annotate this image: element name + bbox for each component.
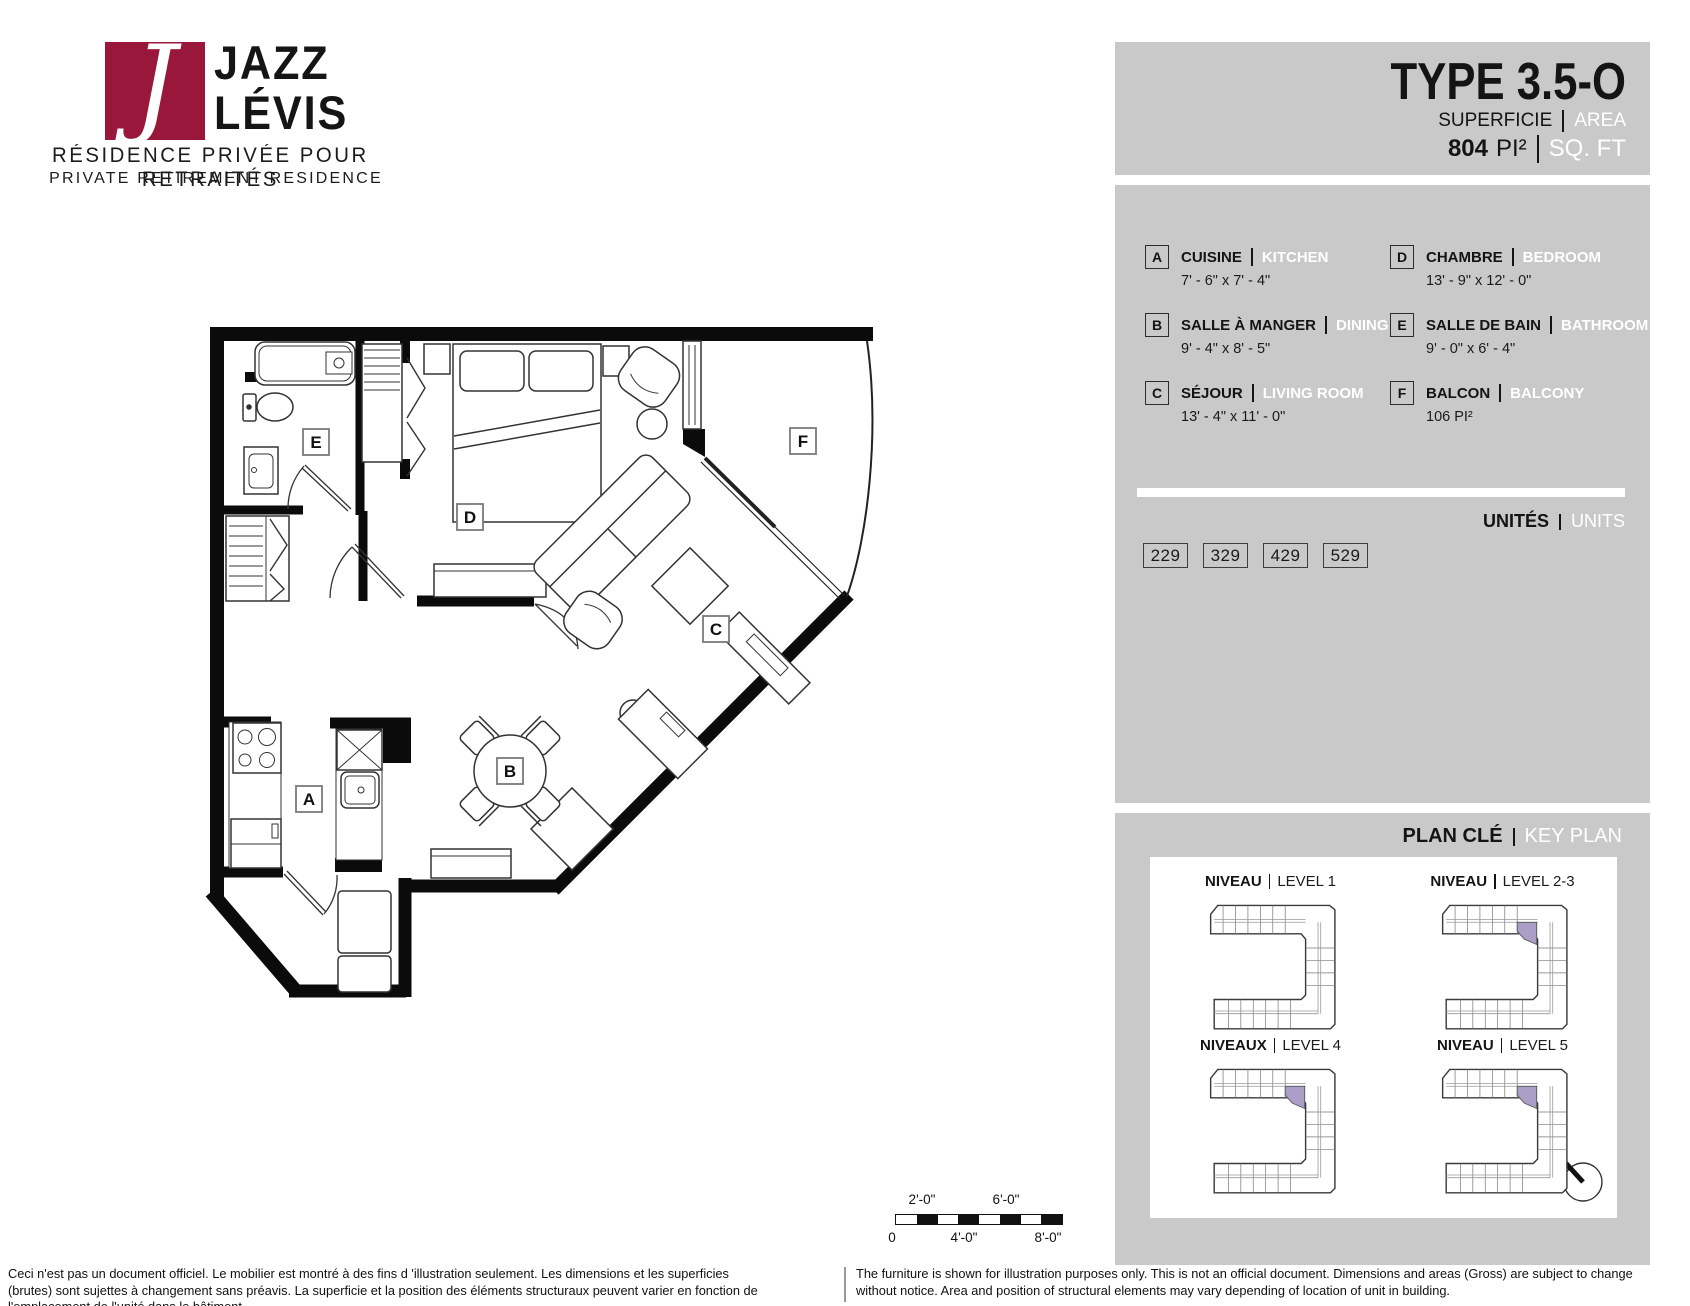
disclaimer-en: The furniture is shown for illustration … <box>856 1266 1636 1299</box>
legend-item: C SÉJOUR LIVING ROOM 13' - 4" x 11' - 0" <box>1145 381 1389 425</box>
scale-segment <box>938 1215 959 1224</box>
tv-console <box>718 612 810 704</box>
room-name-en: BEDROOM <box>1523 249 1601 266</box>
legend-item: D CHAMBRE BEDROOM 13' - 9" x 12' - 0" <box>1390 245 1648 289</box>
level-label-fr: NIVEAUX <box>1200 1037 1267 1054</box>
level-label-en: LEVEL 2-3 <box>1503 873 1575 890</box>
scale-segment <box>958 1215 979 1224</box>
room-name-fr: SÉJOUR <box>1181 385 1243 402</box>
fridge <box>231 819 281 868</box>
svg-text:D: D <box>464 508 476 527</box>
svg-text:C: C <box>710 620 722 639</box>
svg-text:F: F <box>798 432 808 451</box>
unit-type-header-panel: TYPE 3.5-O SUPERFICIE AREA 804 PI² SQ. F… <box>1115 42 1650 175</box>
room-label-D: D <box>457 504 483 530</box>
legend-item: A CUISINE KITCHEN 7' - 6" x 7' - 4" <box>1145 245 1389 289</box>
separator-bar <box>1537 135 1539 163</box>
closet <box>226 516 289 601</box>
room-name-en: KITCHEN <box>1262 249 1329 266</box>
dishwasher <box>337 730 382 770</box>
storage-unit <box>338 956 391 992</box>
key-plan-level: NIVEAU LEVEL 1 <box>1158 871 1383 1041</box>
key-plan-title-fr: PLAN CLÉ <box>1403 825 1503 848</box>
scale-segment <box>1041 1215 1062 1224</box>
room-name-en: BALCONY <box>1510 385 1584 402</box>
unit-number: 429 <box>1263 543 1308 568</box>
room-letter-badge: C <box>1145 381 1169 405</box>
unit-number: 229 <box>1143 543 1188 568</box>
room-name-en: LIVING ROOM <box>1263 385 1364 402</box>
room-name-fr: SALLE À MANGER <box>1181 317 1316 334</box>
scale-label: 0 <box>888 1230 896 1245</box>
svg-text:A: A <box>303 790 315 809</box>
balcony-sliding-door <box>701 458 845 600</box>
nightstand <box>424 344 450 374</box>
key-plan-box: N NIVEAU LEVEL 1 NIVEAU LEVEL 2-3 NIVEAU… <box>1150 857 1617 1218</box>
bedroom-closet <box>362 344 425 476</box>
key-plan-title-en: KEY PLAN <box>1525 825 1622 848</box>
logo-name-line1: JAZZ <box>214 38 348 88</box>
room-name-fr: CHAMBRE <box>1426 249 1503 266</box>
superficie-area-line: SUPERFICIE AREA <box>1115 110 1626 132</box>
units-title-fr: UNITÉS <box>1483 511 1549 532</box>
separator-bar <box>1499 384 1501 402</box>
scale-label: 2'-0" <box>909 1192 936 1207</box>
scale-segment <box>917 1215 938 1224</box>
unit-number: 329 <box>1203 543 1248 568</box>
bench <box>431 849 511 878</box>
separator-bar <box>1550 316 1552 334</box>
unit-number: 529 <box>1323 543 1368 568</box>
units-row: 229329429529 <box>1143 543 1368 568</box>
room-label-C: C <box>703 616 729 642</box>
logo-square: J <box>105 42 205 140</box>
room-label-F: F <box>790 428 816 454</box>
legend-units-panel: A CUISINE KITCHEN 7' - 6" x 7' - 4" B SA… <box>1115 185 1650 803</box>
logo-name-line2: LÉVIS <box>214 88 348 138</box>
scale-label: 4'-0" <box>951 1230 978 1245</box>
logo-tagline-en: PRIVATE RETIREMENT RESIDENCE <box>28 170 404 188</box>
room-label-E: E <box>303 429 329 455</box>
legend-item: E SALLE DE BAIN BATHROOM 9' - 0" x 6' - … <box>1390 313 1648 357</box>
legend-column-left: A CUISINE KITCHEN 7' - 6" x 7' - 4" B SA… <box>1145 245 1389 449</box>
key-plan-level: NIVEAU LEVEL 5 <box>1390 1035 1615 1205</box>
key-plan-panel: PLAN CLÉ KEY PLAN N NIVEAU LEVEL 1 NIVEA… <box>1115 813 1650 1265</box>
level-label-fr: NIVEAU <box>1437 1037 1494 1054</box>
key-plan-title: PLAN CLÉ KEY PLAN <box>1403 825 1622 848</box>
level-label-fr: NIVEAU <box>1430 873 1487 890</box>
doors <box>284 465 578 915</box>
scale-segment <box>896 1215 917 1224</box>
stove <box>233 723 281 773</box>
balcony-railing <box>847 341 872 596</box>
room-label-B: B <box>497 758 523 784</box>
separator-bar <box>1562 110 1564 132</box>
separator-bar <box>1494 874 1496 889</box>
separator-bar <box>1251 248 1253 266</box>
scale-bar: 2'-0" 6'-0" 0 4'-0" 8'-0" <box>880 1192 1080 1248</box>
disclaimer-fr: Ceci n'est pas un document officiel. Le … <box>8 1266 770 1306</box>
coffee-table <box>652 548 728 624</box>
room-name-fr: BALCON <box>1426 385 1490 402</box>
level-label-en: LEVEL 1 <box>1277 873 1336 890</box>
units-title-en: UNITS <box>1571 511 1625 532</box>
side-table <box>637 409 667 439</box>
mini-building-plan <box>1196 1057 1346 1199</box>
kitchen-sink <box>341 772 379 808</box>
room-name-fr: SALLE DE BAIN <box>1426 317 1541 334</box>
units-title: UNITÉS UNITS <box>1483 511 1625 532</box>
scale-segment <box>1021 1215 1042 1224</box>
area-value: 804 <box>1448 135 1488 163</box>
legend-item: B SALLE À MANGER DINING 9' - 4" x 8' - 5… <box>1145 313 1389 357</box>
svg-text:E: E <box>310 433 321 452</box>
room-letter-badge: E <box>1390 313 1414 337</box>
legend-column-right: D CHAMBRE BEDROOM 13' - 9" x 12' - 0" E … <box>1390 245 1648 449</box>
room-letter-badge: A <box>1145 245 1169 269</box>
dresser <box>434 564 546 597</box>
room-letter-badge: D <box>1390 245 1414 269</box>
level-label-en: LEVEL 5 <box>1509 1037 1568 1054</box>
room-letter-badge: B <box>1145 313 1169 337</box>
room-name-fr: CUISINE <box>1181 249 1242 266</box>
footnote-divider <box>844 1267 846 1302</box>
separator-bar <box>1512 248 1514 266</box>
room-dimensions: 13' - 4" x 11' - 0" <box>1181 409 1389 425</box>
key-plan-level: NIVEAU LEVEL 2-3 <box>1390 871 1615 1041</box>
room-name-en: BATHROOM <box>1561 317 1648 334</box>
room-label-A: A <box>296 786 322 812</box>
separator-bar <box>1269 874 1271 889</box>
scale-segment <box>979 1215 1000 1224</box>
legend-item: F BALCON BALCONY 106 PI² <box>1390 381 1648 425</box>
floor-plan: ABCDEF <box>195 290 895 1005</box>
area-label: AREA <box>1574 110 1626 132</box>
level-label-en: LEVEL 4 <box>1282 1037 1341 1054</box>
svg-text:B: B <box>504 762 516 781</box>
balcony-window <box>683 341 701 429</box>
mini-building-plan <box>1428 893 1578 1035</box>
key-plan-level: NIVEAUX LEVEL 4 <box>1158 1035 1383 1205</box>
level-label-fr: NIVEAU <box>1205 873 1262 890</box>
logo-name: JAZZ LÉVIS <box>214 38 348 138</box>
area-unit-en: SQ. FT <box>1549 135 1626 163</box>
separator-bar <box>1559 514 1561 530</box>
separator-bar <box>1501 1038 1503 1053</box>
mini-building-plan <box>1196 893 1346 1035</box>
room-name-en: DINING <box>1336 317 1389 334</box>
scale-segment <box>1000 1215 1021 1224</box>
area-value-line: 804 PI² SQ. FT <box>1115 135 1626 163</box>
room-dimensions: 106 PI² <box>1426 409 1648 425</box>
separator-bar <box>1274 1038 1276 1053</box>
room-dimensions: 9' - 4" x 8' - 5" <box>1181 341 1389 357</box>
mini-building-plan <box>1428 1057 1578 1199</box>
separator-bar <box>1325 316 1327 334</box>
units-divider <box>1137 488 1625 497</box>
logo-monogram-icon: J <box>105 42 205 140</box>
separator-bar <box>1252 384 1254 402</box>
unit-type-title: TYPE 3.5-O <box>1197 56 1626 108</box>
scale-bar-segments <box>895 1214 1063 1225</box>
scale-label: 6'-0" <box>993 1192 1020 1207</box>
room-dimensions: 7' - 6" x 7' - 4" <box>1181 273 1389 289</box>
storage-unit <box>338 891 391 953</box>
scale-label: 8'-0" <box>1035 1230 1062 1245</box>
area-unit-fr: PI² <box>1496 135 1527 163</box>
room-letter-badge: F <box>1390 381 1414 405</box>
room-dimensions: 9' - 0" x 6' - 4" <box>1426 341 1648 357</box>
room-dimensions: 13' - 9" x 12' - 0" <box>1426 273 1648 289</box>
superficie-label: SUPERFICIE <box>1438 110 1552 132</box>
separator-bar <box>1513 828 1515 846</box>
